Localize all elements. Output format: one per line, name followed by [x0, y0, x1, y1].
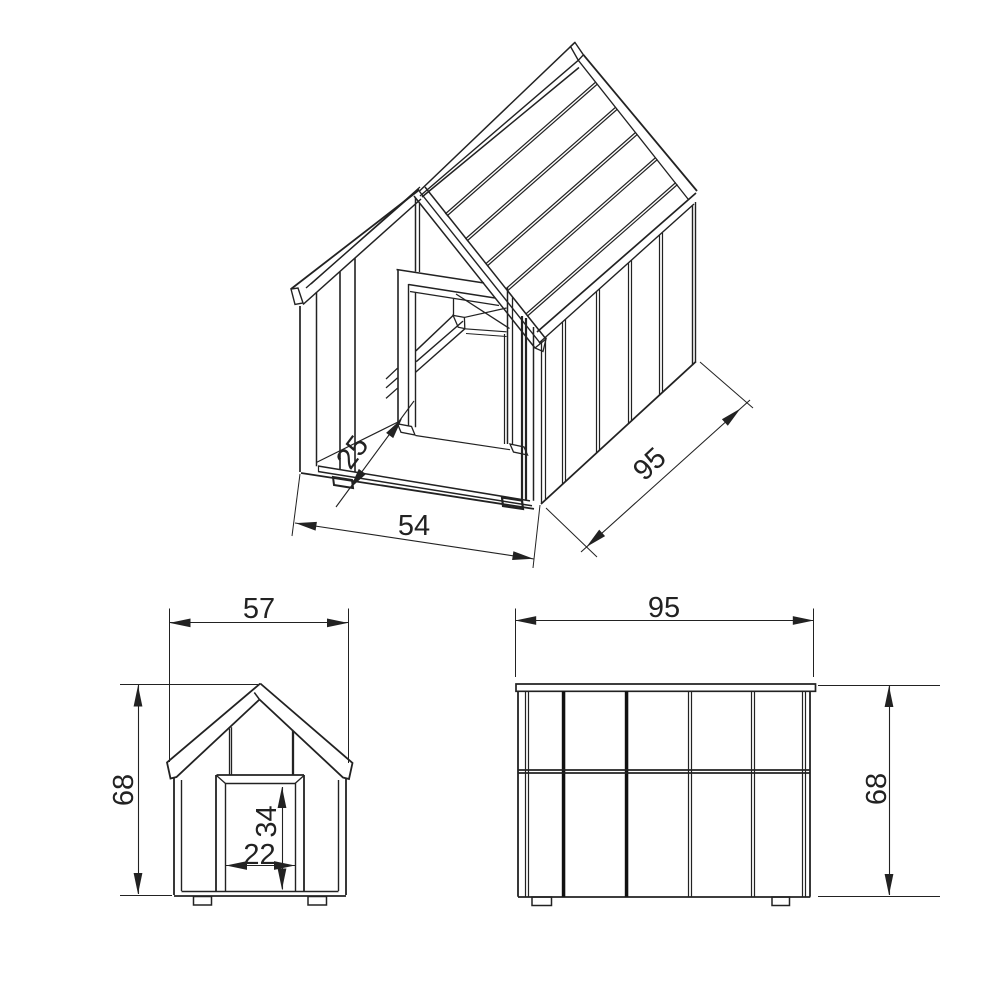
svg-text:95: 95	[648, 592, 680, 624]
svg-text:95: 95	[627, 442, 672, 487]
svg-text:22: 22	[243, 839, 275, 871]
svg-text:54: 54	[398, 510, 430, 542]
svg-text:68: 68	[861, 773, 893, 805]
svg-text:57: 57	[243, 593, 275, 625]
svg-text:68: 68	[108, 774, 140, 806]
svg-text:34: 34	[251, 805, 283, 837]
